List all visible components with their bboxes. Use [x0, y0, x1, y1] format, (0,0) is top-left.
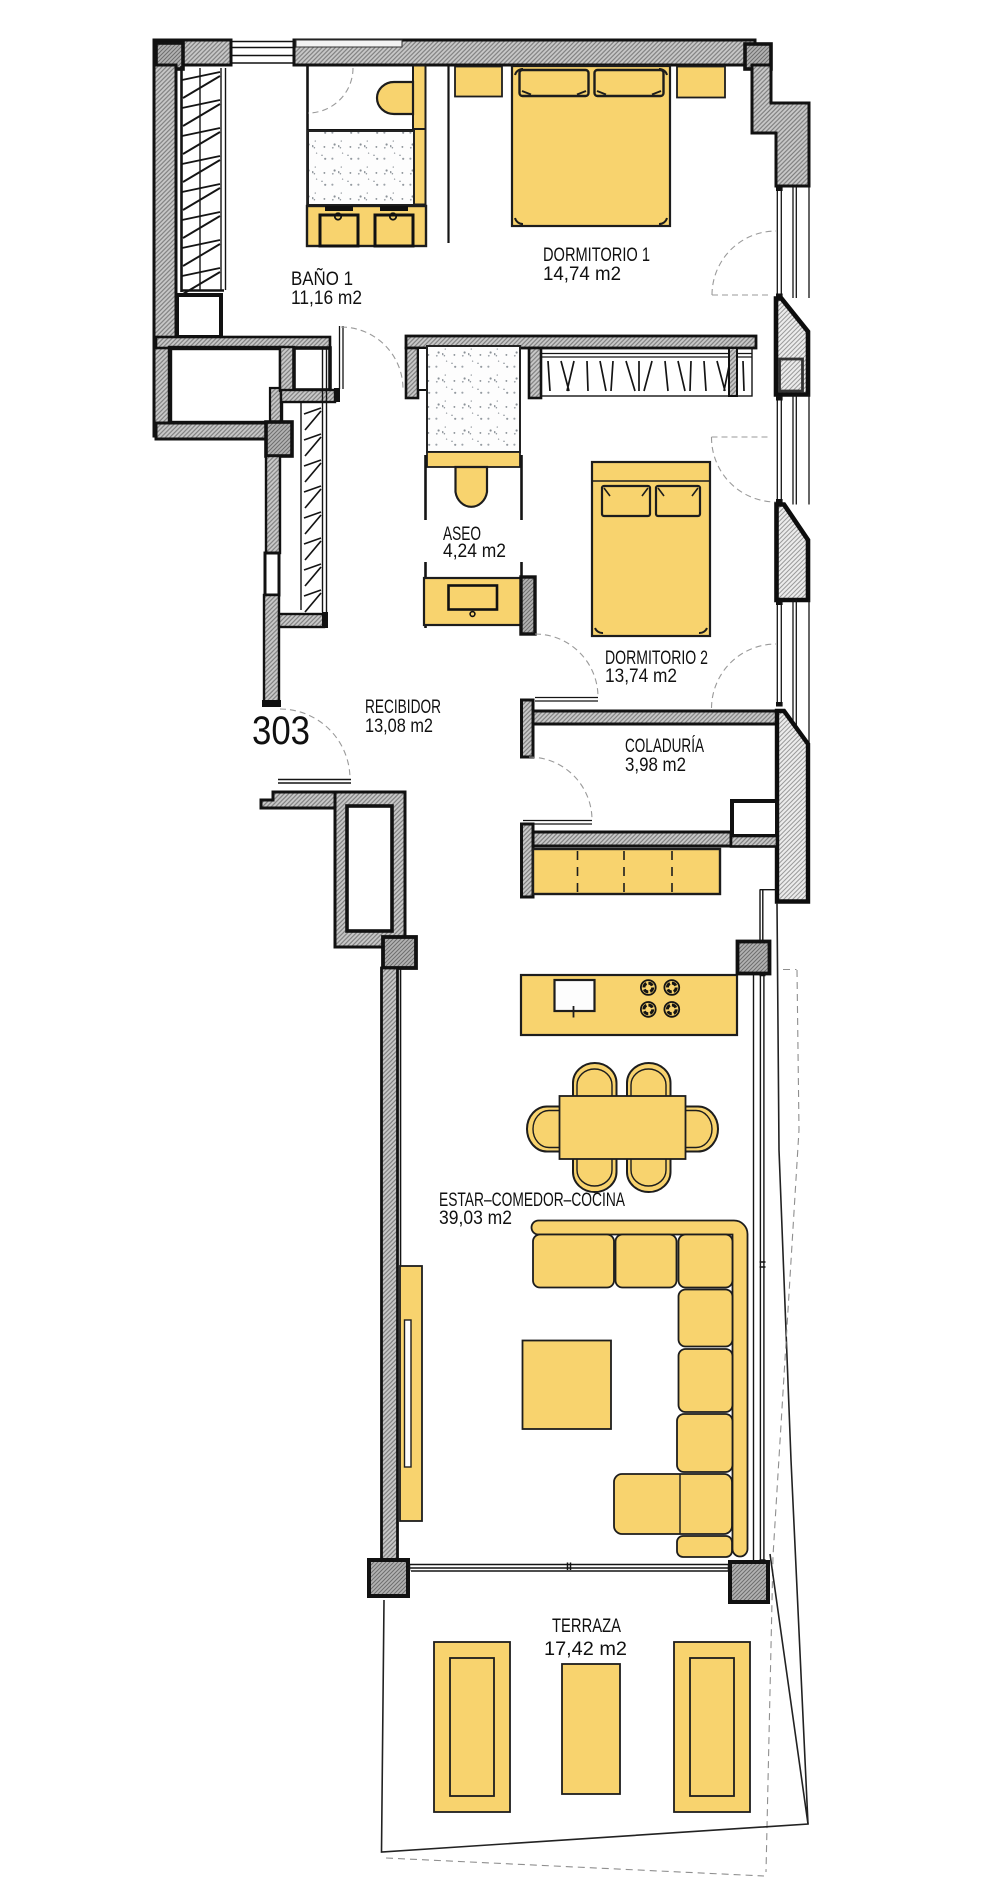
- svg-text:TERRAZA: TERRAZA: [552, 1616, 621, 1637]
- svg-text:303: 303: [252, 709, 310, 753]
- svg-text:39,03 m2: 39,03 m2: [439, 1208, 512, 1229]
- svg-text:13,08 m2: 13,08 m2: [365, 716, 433, 737]
- svg-text:4,24 m2: 4,24 m2: [443, 541, 506, 562]
- svg-text:11,16 m2: 11,16 m2: [291, 288, 362, 309]
- svg-text:3,98 m2: 3,98 m2: [625, 755, 686, 776]
- svg-text:RECIBIDOR: RECIBIDOR: [365, 697, 441, 718]
- svg-text:14,74 m2: 14,74 m2: [543, 264, 621, 285]
- svg-text:BAÑO 1: BAÑO 1: [291, 268, 353, 290]
- svg-text:COLADURÍA: COLADURÍA: [625, 736, 704, 757]
- svg-text:17,42 m2: 17,42 m2: [544, 1639, 627, 1660]
- svg-text:13,74 m2: 13,74 m2: [605, 666, 677, 687]
- svg-text:DORMITORIO 1: DORMITORIO 1: [543, 245, 650, 266]
